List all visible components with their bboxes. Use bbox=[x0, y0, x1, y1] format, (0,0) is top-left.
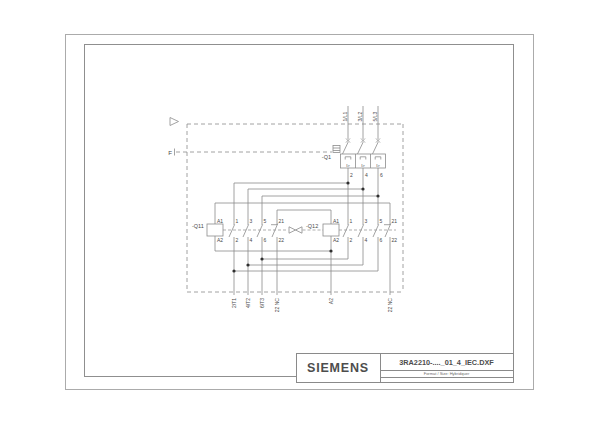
contact-label: 21 bbox=[279, 218, 285, 224]
supply-section: 1/L1 3/L2 5/L3 bbox=[342, 106, 379, 139]
contact-label: 2 bbox=[350, 237, 353, 243]
magnetic-trip-label: I> bbox=[346, 163, 350, 168]
contact-label: 22 bbox=[279, 237, 285, 243]
boundary-triangle-icon bbox=[170, 118, 179, 126]
coil-a1-label: A1 bbox=[217, 218, 223, 224]
breaker-terminal-label: 4 bbox=[365, 172, 368, 178]
terminal-label: 22 NC bbox=[387, 298, 393, 313]
boundary-markers: F bbox=[168, 118, 178, 156]
terminal-label: 6/T3 bbox=[259, 298, 265, 308]
contact-label: 4 bbox=[365, 237, 368, 243]
contactor-ref-label: -Q12 bbox=[306, 223, 318, 229]
contact-label: 5 bbox=[380, 218, 383, 224]
thermal-overload-icon bbox=[345, 157, 351, 160]
supply-label-l2: 3/L2 bbox=[357, 112, 363, 122]
breaker-terminal-label: 6 bbox=[380, 172, 383, 178]
brand-logo: SIEMENS bbox=[307, 361, 369, 375]
contact-label: 1 bbox=[350, 218, 353, 224]
thermal-overload-icon bbox=[360, 157, 366, 160]
contact-label: 1 bbox=[236, 218, 239, 224]
coil-symbol bbox=[323, 224, 339, 236]
contactor-ref-label: -Q11 bbox=[192, 223, 204, 229]
format-size-label: Format / Size: Hybridquer bbox=[424, 371, 470, 376]
supply-label-l3: 5/L3 bbox=[372, 112, 378, 122]
contact-label: 4 bbox=[250, 237, 253, 243]
title-block: SIEMENS 3RA2210-...._01_4_IEC.DXF Format… bbox=[296, 353, 513, 382]
function-line-label: F bbox=[168, 149, 172, 156]
terminal-label: A2 bbox=[328, 298, 334, 304]
coil-a2-label: A2 bbox=[217, 237, 223, 243]
contact-label: 22 bbox=[392, 237, 398, 243]
thermal-overload-icon bbox=[375, 157, 381, 160]
magnetic-trip-label: I> bbox=[361, 163, 365, 168]
terminal-label: 2/T1 bbox=[231, 298, 237, 308]
contact-label: 3 bbox=[250, 218, 253, 224]
contact-label: 2 bbox=[236, 237, 239, 243]
magnetic-trip-label: I> bbox=[376, 163, 380, 168]
enclosure-boundary bbox=[176, 124, 403, 292]
manual-operator-icon bbox=[333, 146, 340, 153]
bottom-terminals: 2/T1 4/T2 6/T3 22 NC A2 22 NC bbox=[231, 298, 393, 313]
contact-label: 6 bbox=[380, 237, 383, 243]
schematic-canvas: F 1/L1 3/L2 5/L3 bbox=[0, 0, 600, 424]
terminal-label: 22 NC bbox=[274, 298, 280, 313]
coil-symbol bbox=[207, 224, 223, 236]
supply-label-l1: 1/L1 bbox=[342, 112, 348, 122]
mechanical-interlock-icon bbox=[289, 227, 302, 233]
breaker-ref-label: -Q1 bbox=[322, 154, 331, 160]
drawing-page: F 1/L1 3/L2 5/L3 bbox=[0, 0, 600, 424]
sheet-frames bbox=[65, 34, 533, 389]
contact-label: 3 bbox=[365, 218, 368, 224]
drawing-name: 3RA2210-...._01_4_IEC.DXF bbox=[399, 358, 494, 367]
contact-label: 5 bbox=[264, 218, 267, 224]
breaker-q1: I> I> I> -Q1 2 4 6 bbox=[322, 139, 386, 179]
outer-frame bbox=[65, 34, 533, 389]
breaker-terminal-label: 2 bbox=[350, 172, 353, 178]
terminal-label: 4/T2 bbox=[245, 298, 251, 308]
wiring bbox=[215, 168, 390, 295]
coil-a2-label: A2 bbox=[333, 237, 339, 243]
contact-label: 21 bbox=[392, 218, 398, 224]
coil-a1-label: A1 bbox=[333, 218, 339, 224]
contact-label: 6 bbox=[264, 237, 267, 243]
